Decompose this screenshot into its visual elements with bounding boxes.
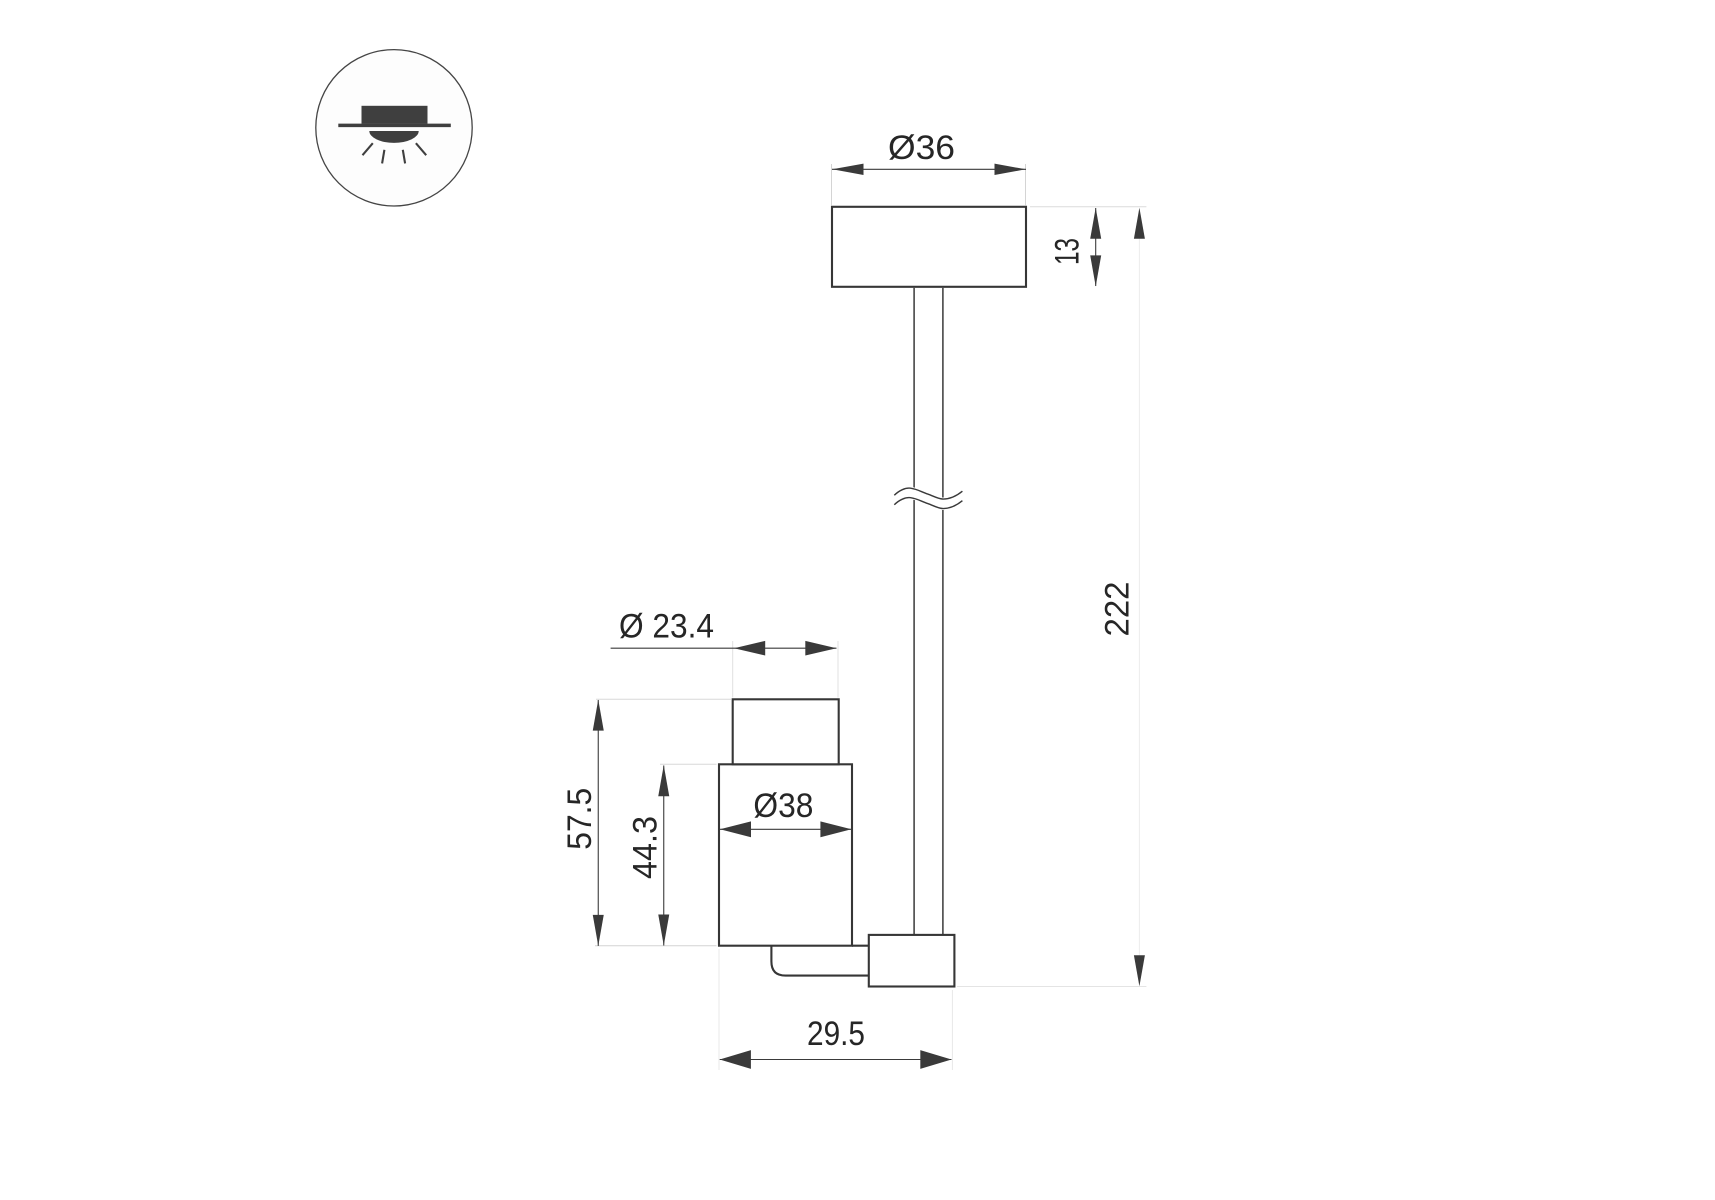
svg-text:44.3: 44.3 — [627, 816, 665, 879]
svg-text:222: 222 — [1099, 582, 1137, 637]
svg-text:Ø 23.4: Ø 23.4 — [619, 608, 714, 646]
svg-text:13: 13 — [1049, 238, 1087, 265]
svg-text:Ø38: Ø38 — [753, 787, 813, 825]
svg-text:29.5: 29.5 — [807, 1015, 865, 1053]
svg-text:Ø36: Ø36 — [888, 129, 955, 167]
svg-text:57.5: 57.5 — [561, 788, 599, 850]
